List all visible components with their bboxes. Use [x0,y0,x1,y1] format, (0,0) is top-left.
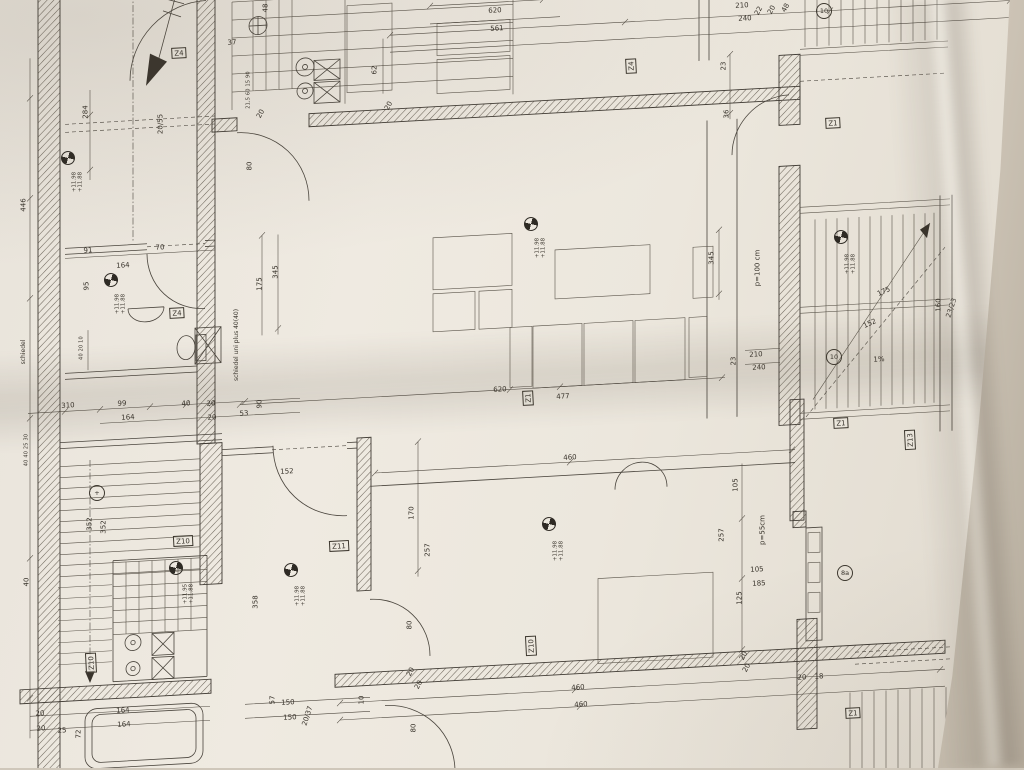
dim-352: 352 [101,520,108,533]
dim-175: 175 [876,286,891,298]
dim-620: 620 [493,386,507,394]
zone-label-z1: Z1 [522,390,534,406]
dim-150: 150 [281,699,295,707]
level-values: +11.98 +11.88 [72,172,85,192]
level-value: +11.88 [121,294,127,314]
dim-22: 22 [754,5,764,16]
dim-164: 164 [121,414,135,422]
zone-label-z13: Z13 [904,430,916,450]
dim-477: 477 [556,393,570,401]
dim-25: 25 [57,727,66,734]
dim-20: 20 [767,4,777,15]
dim-20: 20 [406,666,416,677]
parapet-height-label: p=100 cm [755,250,762,287]
level-value: +11.88 [301,586,307,606]
dim-20: 20 [384,100,394,111]
dim-446: 446 [21,198,28,211]
level-value: +11.88 [559,541,565,561]
level-values: +11.98 +11.88 [115,294,128,314]
dim-20: 20 [207,414,216,421]
level-values: +11.98 +11.88 [295,586,308,606]
dim-358: 358 [253,595,260,608]
survey-point-icon: + [89,485,105,501]
level-values: +11.95 +11.88 [183,584,196,604]
dim-18: 18 [814,673,823,680]
dim-152: 152 [280,468,294,476]
zone-label-z1: Z1 [845,707,861,719]
dim-62: 62 [372,66,379,75]
dim-53: 53 [239,410,248,417]
dim-chain: 40 20 10 [80,336,85,360]
dim-48: 48 [781,2,791,13]
dim-80: 80 [247,162,254,171]
level-marker-icon [168,560,185,577]
dim-80: 80 [411,724,418,733]
level-marker-icon [283,562,300,579]
level-value: +11.88 [851,254,857,274]
dim-152: 152 [862,318,877,330]
dim-70: 70 [155,244,164,251]
dim-164: 164 [116,707,130,715]
dim-72: 72 [76,730,83,739]
chimney-spec-text: schiedel uni plus 40(40) [234,309,240,381]
dim-37: 37 [227,39,236,46]
level-value: +11.88 [541,238,547,258]
dim-10: 10 [359,696,366,705]
dim-210: 210 [749,351,763,359]
dim-620: 620 [488,7,502,15]
dim-23: 23 [721,62,728,71]
dim-40: 40 [181,400,190,407]
stair-ratio-label: 23/23 [946,297,959,318]
position-label-8a: 8a [837,565,853,581]
dim-185: 185 [752,580,766,588]
dim-20: 20 [35,710,44,717]
dim-210: 210 [735,2,749,10]
level-marker-icon [103,272,120,289]
position-label-10: 10 [816,3,832,19]
zone-label-z10: Z10 [173,535,193,547]
dim-105: 105 [733,478,740,491]
parapet-height-label: p=55cm [760,515,767,545]
zone-label-z11: Z11 [329,540,349,552]
dim-chain: 21,5 60 15 90 [247,71,252,109]
dim-48: 48 [263,4,270,13]
level-marker-icon [60,150,77,167]
dim-90: 90 [257,400,264,409]
zone-label-z10: Z10 [525,636,537,656]
dim-164: 164 [116,262,130,270]
dim-95: 95 [84,282,91,291]
dim-20: 20 [36,725,45,732]
level-values: +11.98 +11.88 [535,238,548,258]
dim-23: 23 [731,357,738,366]
dim-561: 561 [490,25,504,33]
dim-240: 240 [752,364,766,372]
dim-284: 284 [83,105,90,118]
level-marker-icon [833,229,850,246]
dim-40: 40 [24,578,31,587]
dim-125: 125 [737,591,744,604]
zone-label-z1: Z1 [833,417,849,429]
level-value: +11.88 [78,172,84,192]
level-marker-icon [541,516,558,533]
dim-105: 105 [750,566,764,574]
level-values: +11.98 +11.88 [845,254,858,274]
dim-257: 257 [425,543,432,556]
photographed-floorplan: 446 284 20/55 Z4 37 48 21,5 60 15 90 80 … [0,0,1024,768]
plan-annotations: 446 284 20/55 Z4 37 48 21,5 60 15 90 80 … [0,0,1024,768]
dim-240: 240 [738,15,752,23]
dim-460: 460 [571,684,585,692]
dim-352: 352 [87,517,94,530]
lintel-20-55: 20/55 [158,114,165,134]
slope-label: 1% [873,356,884,364]
level-marker-icon [523,216,540,233]
level-values: +11.98 +11.88 [553,541,566,561]
dim-20: 20 [739,650,749,661]
dim-160: 160 [936,298,943,311]
dim-36: 36 [724,110,731,119]
dim-310: 310 [61,402,75,410]
dim-20: 20 [206,400,215,407]
lintel-20-37: 20/37 [302,705,315,726]
chimney-brand-text: schiedel [21,340,27,365]
dim-20: 20 [256,108,266,119]
dim-91: 91 [83,247,92,254]
position-label-10: 10 [826,349,842,365]
dim-170: 170 [409,506,416,519]
dim-57: 57 [270,696,277,705]
dim-164: 164 [117,721,131,729]
zone-label-z4: Z4 [171,47,187,59]
scanned-floorplan-paper: 446 284 20/55 Z4 37 48 21,5 60 15 90 80 … [0,0,1024,768]
dim-460: 460 [563,454,577,462]
level-value: +11.88 [189,584,195,604]
dim-175: 175 [257,277,264,290]
dim-20: 20 [797,674,806,681]
zone-label-z4: Z4 [169,307,185,319]
zone-label-z10: Z10 [85,653,97,673]
dim-chain: 40 40 25 30 [25,434,30,466]
dim-345: 345 [273,265,280,278]
dim-257: 257 [719,528,726,541]
dim-80: 80 [407,621,414,630]
dim-99: 99 [117,400,126,407]
zone-label-z1: Z1 [825,117,841,129]
dim-150: 150 [283,714,297,722]
dim-345: 345 [709,251,716,264]
dim-460: 460 [574,701,588,709]
dim-20: 20 [742,662,752,673]
zone-label-z4: Z4 [625,58,637,74]
dim-20: 20 [414,679,424,690]
